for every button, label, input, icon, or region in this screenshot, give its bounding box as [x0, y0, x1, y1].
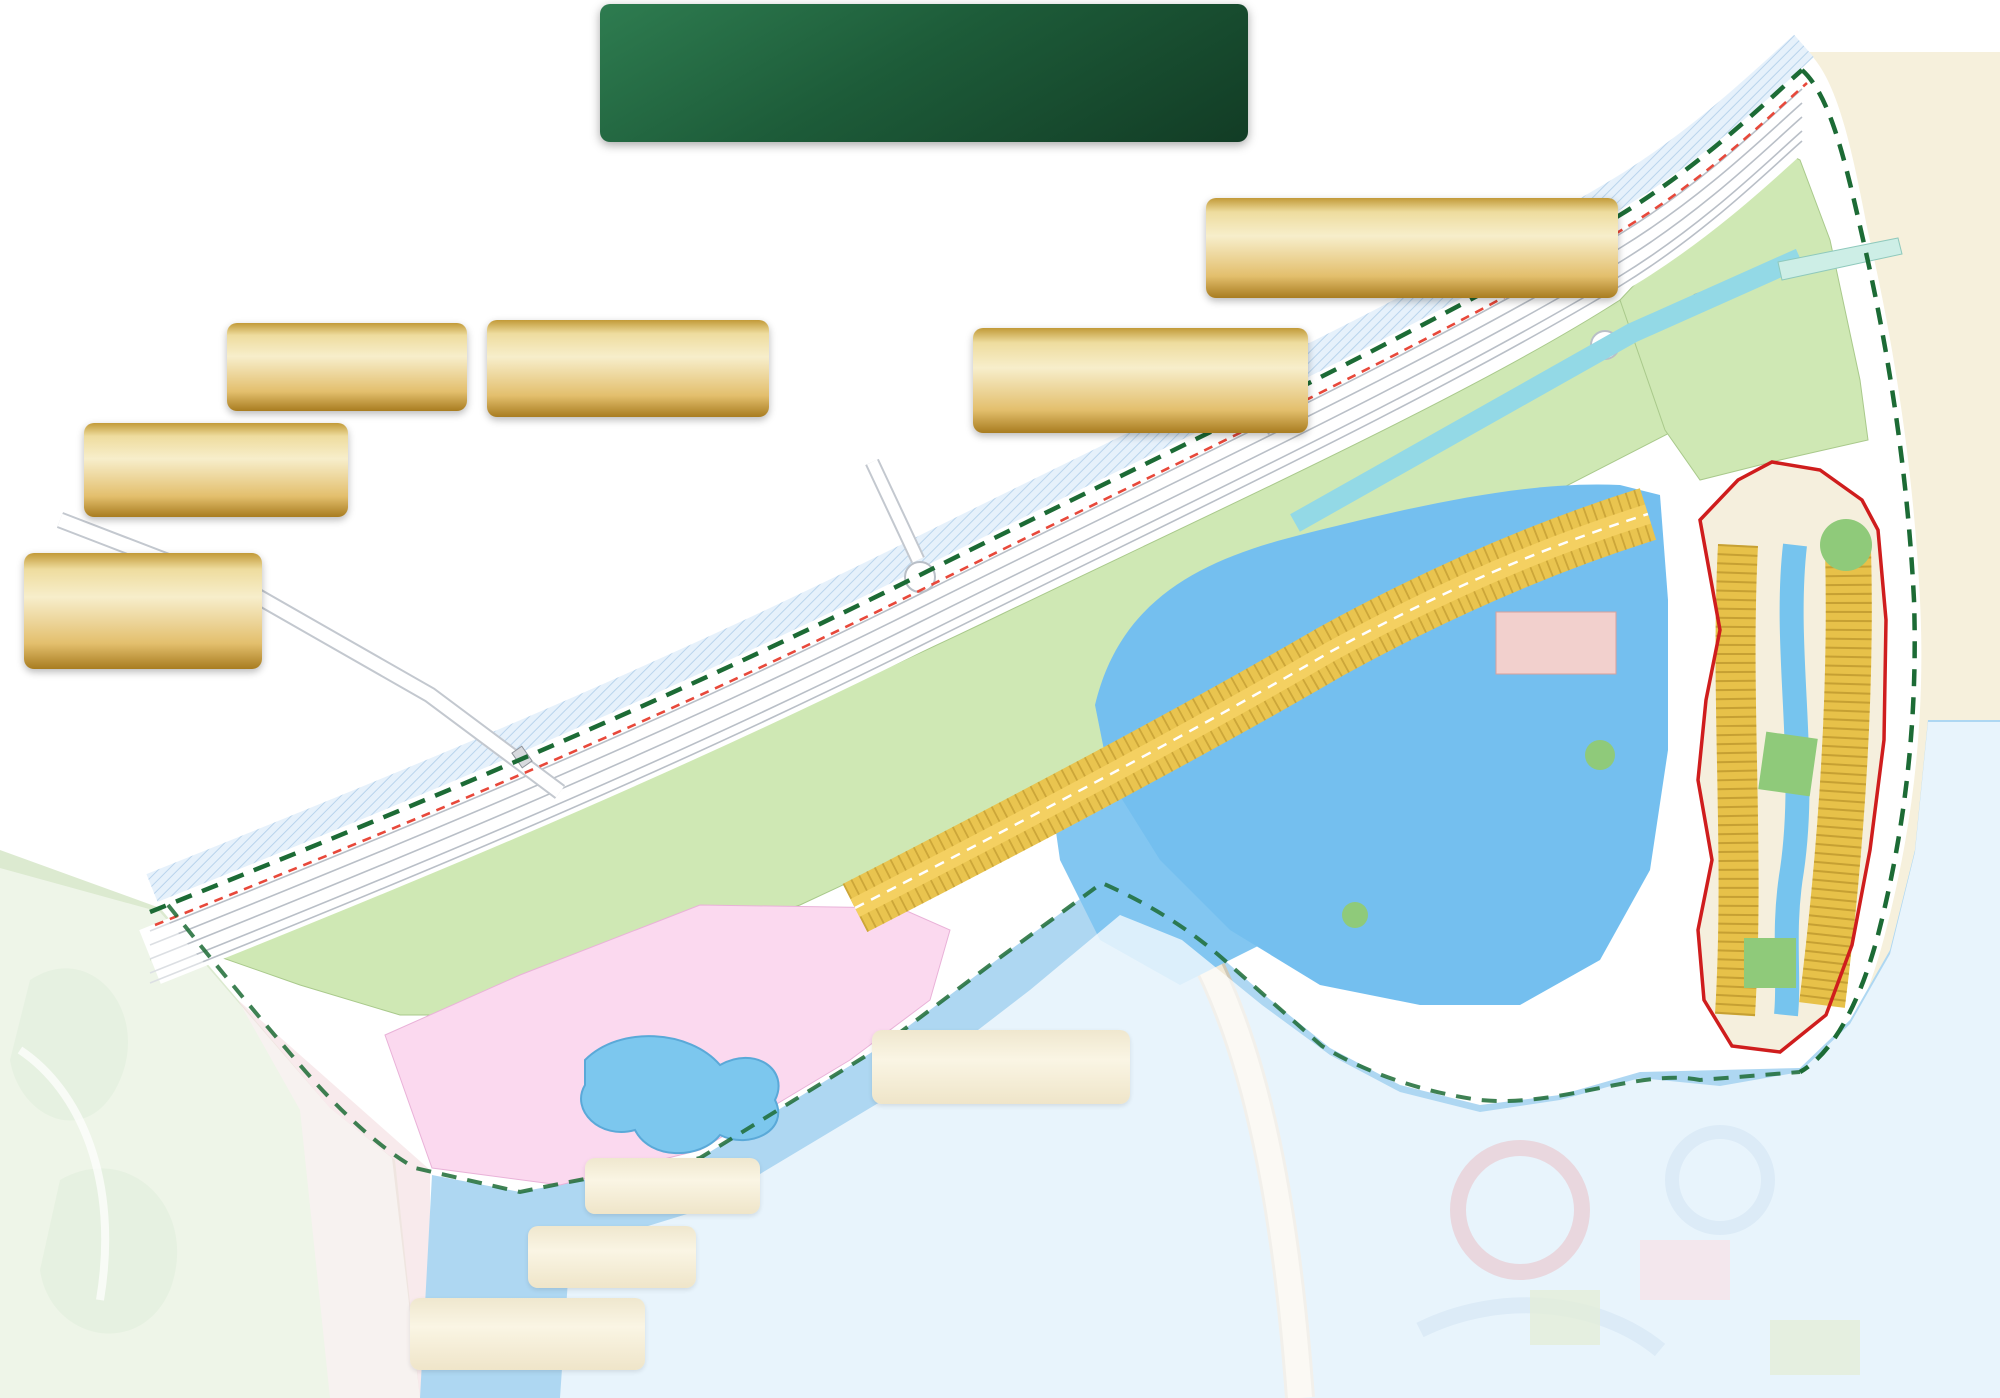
- callout-benh-vien-vinmec: [487, 320, 769, 417]
- callout-nha-thi-dau: [227, 323, 467, 411]
- callout-khach-san-25-tang: [528, 1226, 696, 1288]
- master-plan-map[interactable]: [0, 0, 2000, 1398]
- callout-ga-depot: [24, 553, 262, 669]
- project-title-banner: [600, 4, 1248, 142]
- callout-khach-san-5-sao: [973, 328, 1308, 433]
- callout-tttm-vincom-plaza: [1206, 198, 1618, 298]
- callout-van-phong-15-tang: [585, 1158, 760, 1214]
- callout-trung-tam-cong-dong: [84, 423, 348, 517]
- callout-nha-hat-song-xanh: [410, 1298, 645, 1370]
- master-plan-canvas: [0, 0, 2000, 1398]
- callout-bien-nuoc-man: [872, 1030, 1130, 1104]
